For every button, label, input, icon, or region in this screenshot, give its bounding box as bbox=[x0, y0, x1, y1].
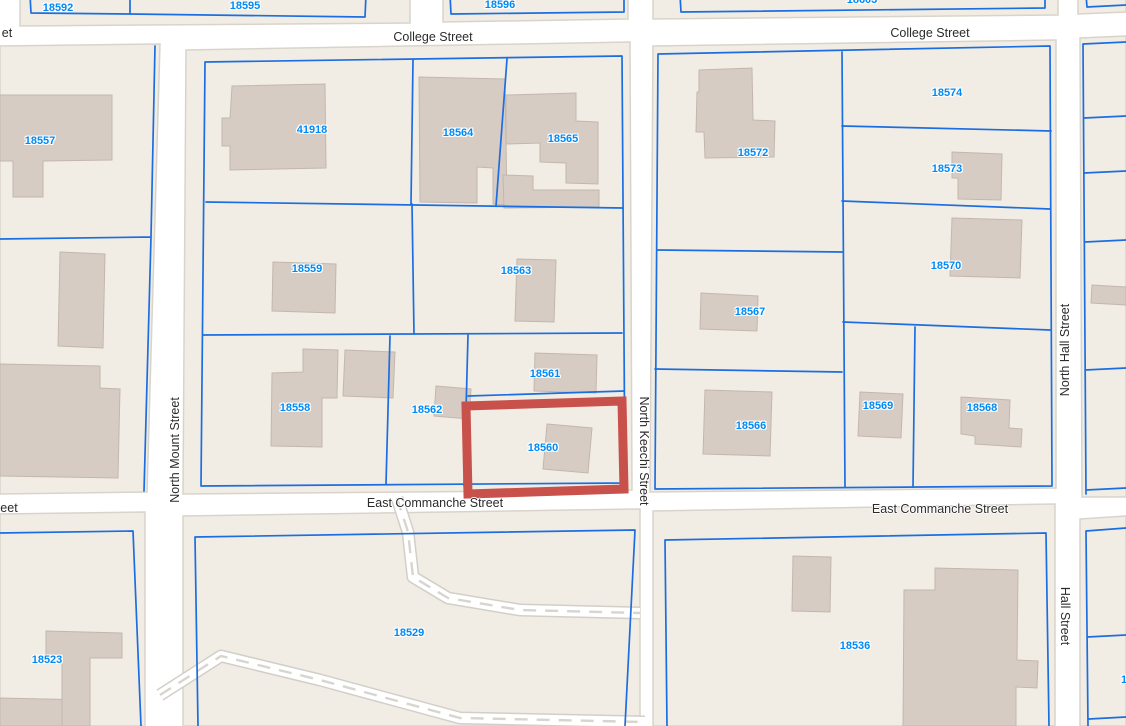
building-18536-small bbox=[792, 556, 831, 612]
street-label-college-west: College Street bbox=[393, 30, 472, 44]
building-18569 bbox=[858, 392, 903, 438]
parcel-label-18567[interactable]: 18567 bbox=[735, 306, 766, 318]
street-label-hall: Hall Street bbox=[1058, 587, 1072, 645]
parcel-label-18565[interactable]: 18565 bbox=[548, 133, 579, 145]
parcel-label-18557[interactable]: 18557 bbox=[25, 135, 56, 147]
parcel-label-partial-right[interactable]: 1 bbox=[1121, 674, 1126, 686]
parcel-label-18558[interactable]: 18558 bbox=[280, 402, 311, 414]
parcel-label-18574[interactable]: 18574 bbox=[932, 87, 963, 99]
parcel-label-18572[interactable]: 18572 bbox=[738, 147, 769, 159]
building-right-column bbox=[1091, 285, 1126, 305]
block-right-column-upper bbox=[1080, 36, 1126, 497]
building-18564 bbox=[419, 77, 507, 205]
parcel-label-18559[interactable]: 18559 bbox=[292, 263, 323, 275]
street-label-north-hall: North Hall Street bbox=[1058, 304, 1072, 396]
parcel-label-18562[interactable]: 18562 bbox=[412, 404, 443, 416]
parcel-label-18561[interactable]: 18561 bbox=[530, 368, 561, 380]
parcel-label-18568[interactable]: 18568 bbox=[967, 402, 998, 414]
parcel-label-18564[interactable]: 18564 bbox=[443, 127, 474, 139]
parcel-label-41918[interactable]: 41918 bbox=[297, 124, 328, 136]
parcel-label-18529[interactable]: 18529 bbox=[394, 627, 425, 639]
map-geometry bbox=[0, 0, 1126, 726]
street-label-partial-bottom-left: eet bbox=[0, 501, 17, 515]
street-label-east-commanche-west: East Commanche Street bbox=[367, 496, 503, 510]
parcel-label-18560[interactable]: 18560 bbox=[528, 442, 559, 454]
parcel-label-18523[interactable]: 18523 bbox=[32, 654, 63, 666]
parcel-label-18563[interactable]: 18563 bbox=[501, 265, 532, 277]
parcel-label-18536[interactable]: 18536 bbox=[840, 640, 871, 652]
street-label-north-keechi: North Keechi Street bbox=[637, 396, 651, 505]
parcel-label-18595[interactable]: 18595 bbox=[230, 0, 261, 12]
parcel-label-18603[interactable]: 18603 bbox=[847, 0, 878, 6]
parcel-label-18573[interactable]: 18573 bbox=[932, 163, 963, 175]
parcel-map-canvas[interactable]: 18592 18595 18596 18603 18557 41918 1856… bbox=[0, 0, 1126, 726]
parcel-label-18569[interactable]: 18569 bbox=[863, 400, 894, 412]
parcel-label-18570[interactable]: 18570 bbox=[931, 260, 962, 272]
building-left-mid bbox=[58, 252, 105, 348]
parcel-label-18566[interactable]: 18566 bbox=[736, 420, 767, 432]
building-18573 bbox=[952, 152, 1002, 200]
street-label-east-commanche-east: East Commanche Street bbox=[872, 502, 1008, 516]
building-18558-annex bbox=[343, 350, 395, 398]
street-label-north-mount: North Mount Street bbox=[168, 397, 182, 503]
street-label-partial-top-left: et bbox=[2, 26, 12, 40]
street-label-college-east: College Street bbox=[890, 26, 969, 40]
parcel-label-18596[interactable]: 18596 bbox=[485, 0, 516, 11]
parcel-label-18592[interactable]: 18592 bbox=[43, 2, 74, 14]
block-top-mid bbox=[443, 0, 628, 22]
